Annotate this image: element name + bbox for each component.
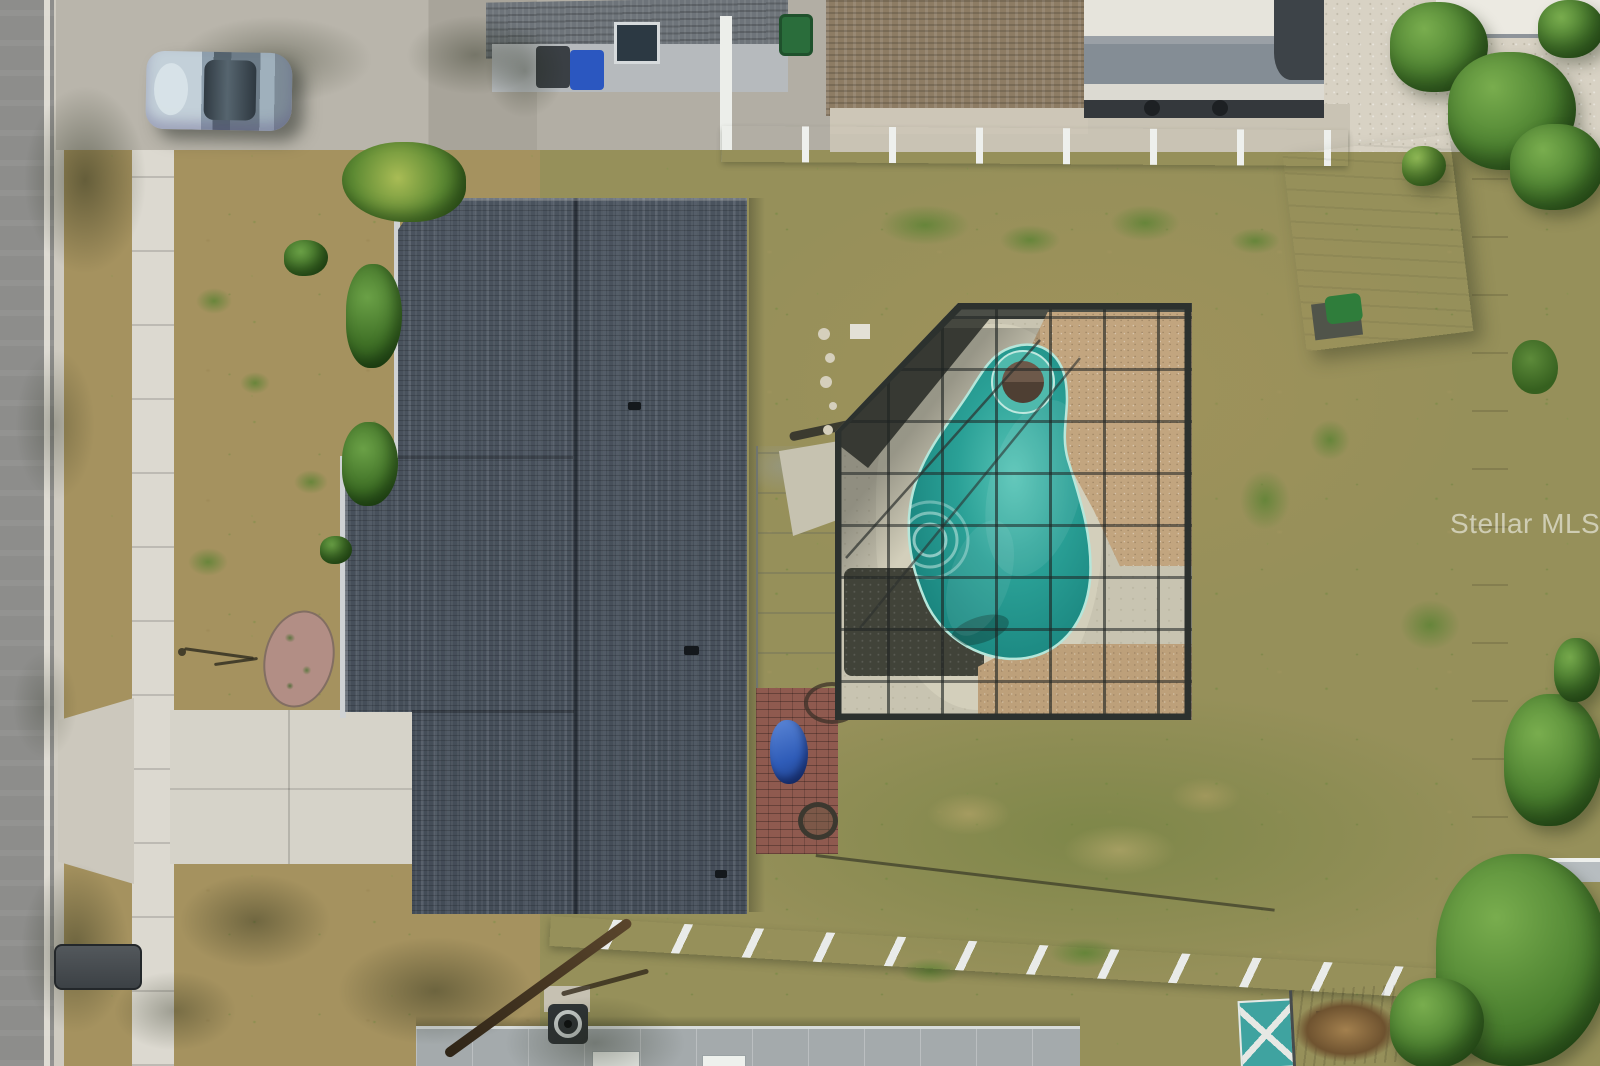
roof-vent bbox=[684, 646, 699, 655]
patio-chair bbox=[779, 14, 813, 56]
tree-canopy bbox=[1538, 0, 1600, 58]
roof-ridge bbox=[572, 198, 580, 914]
rv-trailer bbox=[1084, 0, 1324, 118]
weed-patch bbox=[1000, 225, 1060, 255]
lawn-mower bbox=[1324, 293, 1363, 325]
rv-wheel bbox=[1212, 100, 1228, 116]
weed-patch bbox=[1400, 600, 1460, 650]
weed-patch bbox=[1240, 470, 1290, 530]
driveway-slab bbox=[170, 710, 412, 864]
watermark: Stellar MLS bbox=[1450, 508, 1600, 540]
roof-edge-highlight bbox=[420, 198, 747, 201]
tree-canopy bbox=[1510, 124, 1600, 210]
roof-vent bbox=[628, 402, 641, 410]
weed-patch bbox=[880, 205, 970, 245]
sandy-patches bbox=[840, 742, 1270, 922]
dead-palm-fronds bbox=[1294, 998, 1398, 1062]
weed-patch bbox=[188, 548, 228, 576]
neighbor-window bbox=[614, 22, 660, 64]
stepping-stones bbox=[818, 328, 830, 340]
neighbor-roof-brown bbox=[826, 0, 1088, 116]
weed-patch bbox=[1310, 420, 1350, 460]
roof-edge-highlight bbox=[345, 458, 348, 712]
weed-patch bbox=[1230, 228, 1280, 254]
rv-front-cap bbox=[1274, 0, 1324, 80]
weed-patch bbox=[1110, 205, 1180, 241]
roof-vent bbox=[715, 870, 727, 878]
car-hood-highlight bbox=[154, 63, 189, 116]
tree-shadow bbox=[0, 50, 170, 310]
roof-seam bbox=[412, 710, 574, 713]
weed-patch bbox=[240, 372, 270, 394]
tree-shadow bbox=[0, 320, 110, 530]
sprinkler-head bbox=[178, 648, 186, 656]
tree-shadow bbox=[0, 630, 90, 780]
fire-pit bbox=[798, 802, 838, 840]
fence-north bbox=[722, 126, 1348, 166]
paver-slab bbox=[850, 324, 870, 339]
palm-bush bbox=[342, 142, 466, 222]
tree-canopy bbox=[1504, 694, 1600, 826]
weed-patch bbox=[196, 288, 232, 314]
aerial-photo: Stellar MLS bbox=[0, 0, 1600, 1066]
tree-shadow bbox=[470, 6, 580, 136]
teal-shed-wall bbox=[1238, 998, 1296, 1066]
trash-bin-street bbox=[54, 944, 142, 990]
cactus bbox=[1512, 340, 1558, 394]
car-glass-roof bbox=[203, 60, 256, 121]
weed-patch bbox=[294, 470, 328, 494]
blue-tarp-grill bbox=[770, 720, 808, 784]
tree-canopy bbox=[1390, 978, 1484, 1066]
rv-wheel bbox=[1144, 100, 1160, 116]
parked-car bbox=[145, 51, 292, 132]
